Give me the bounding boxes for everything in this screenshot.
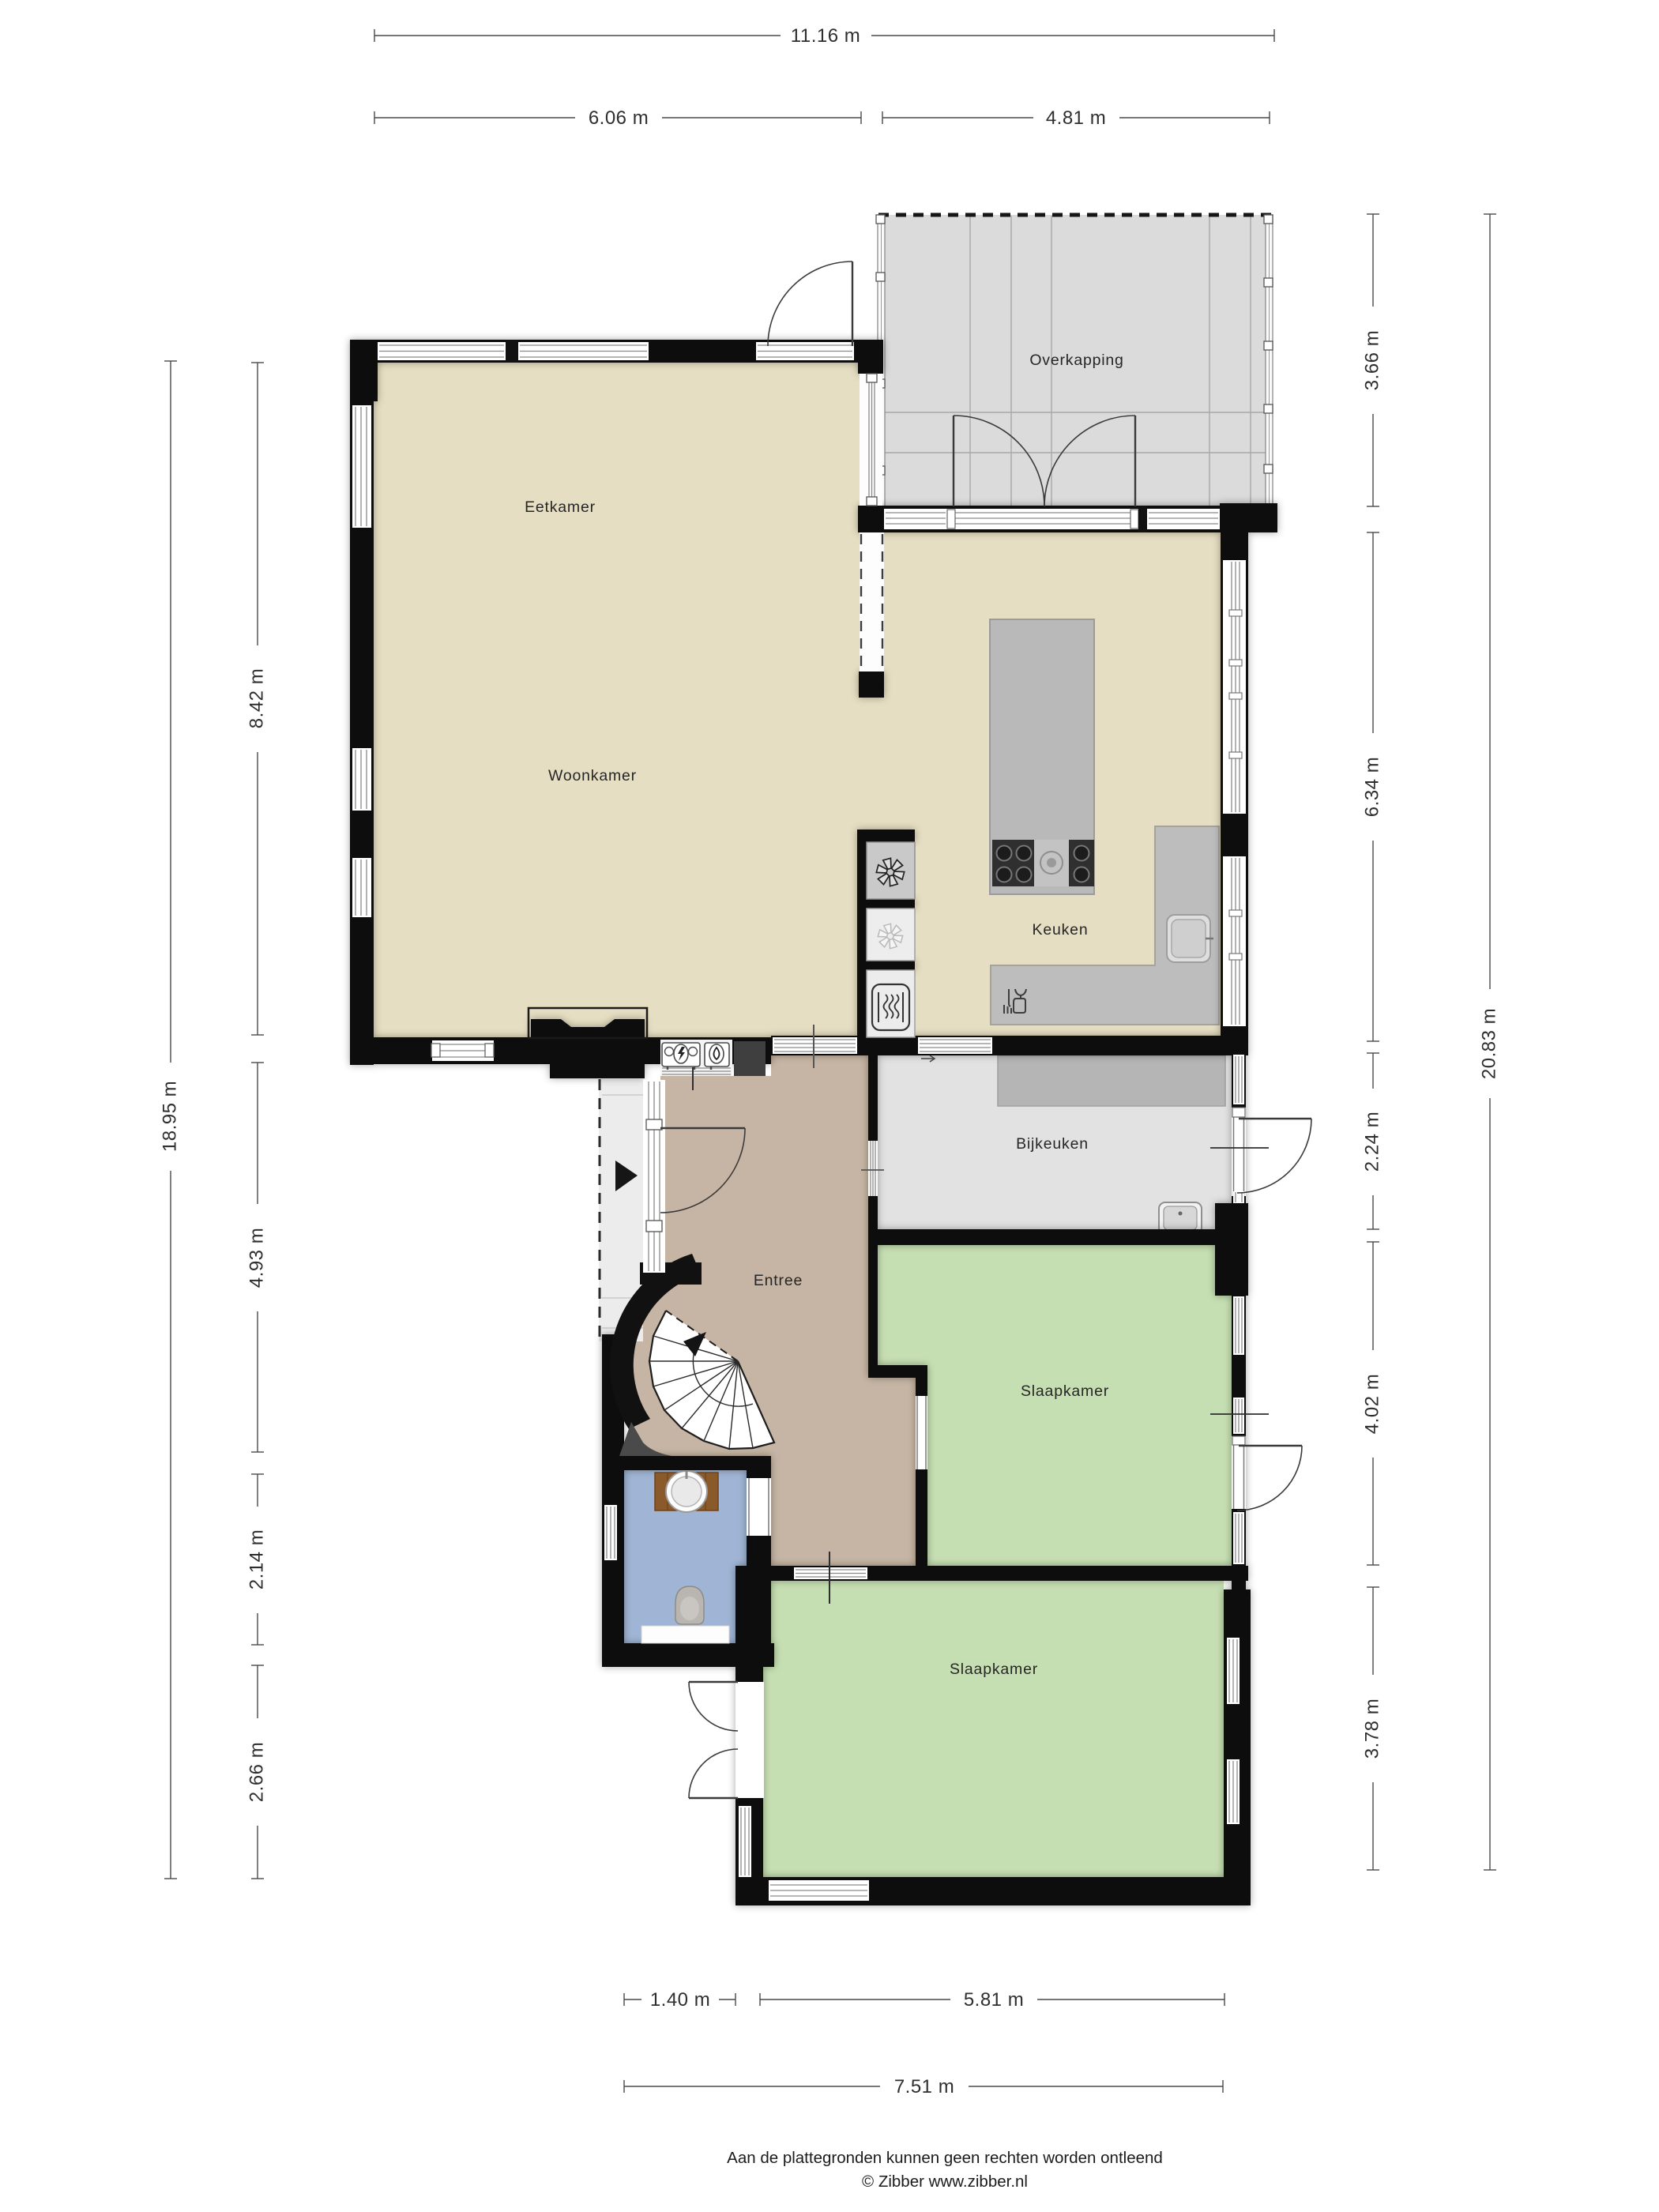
- svg-text:3.66 m: 3.66 m: [1361, 330, 1382, 390]
- svg-text:Entree: Entree: [754, 1272, 803, 1289]
- svg-text:7.51 m: 7.51 m: [894, 2076, 954, 2097]
- svg-text:Eetkamer: Eetkamer: [525, 498, 596, 516]
- svg-text:4.02 m: 4.02 m: [1361, 1374, 1382, 1434]
- svg-text:Slaapkamer: Slaapkamer: [1021, 1382, 1109, 1400]
- svg-text:2.24 m: 2.24 m: [1361, 1112, 1382, 1172]
- svg-text:11.16 m: 11.16 m: [791, 25, 860, 47]
- svg-text:Aan de plattegronden kunnen ge: Aan de plattegronden kunnen geen rechten…: [727, 2149, 1163, 2167]
- svg-text:1.40 m: 1.40 m: [650, 1989, 710, 2011]
- svg-text:3.78 m: 3.78 m: [1361, 1698, 1382, 1759]
- svg-text:8.42 m: 8.42 m: [246, 668, 267, 728]
- svg-text:5.81 m: 5.81 m: [964, 1989, 1024, 2011]
- svg-text:Overkapping: Overkapping: [1029, 352, 1123, 369]
- svg-text:6.06 m: 6.06 m: [589, 107, 649, 129]
- svg-text:4.93 m: 4.93 m: [246, 1228, 267, 1288]
- svg-text:2.66 m: 2.66 m: [246, 1742, 267, 1802]
- svg-text:18.95 m: 18.95 m: [159, 1081, 180, 1152]
- svg-text:Woonkamer: Woonkamer: [548, 767, 637, 784]
- svg-text:Slaapkamer: Slaapkamer: [950, 1661, 1038, 1678]
- svg-text:2.14 m: 2.14 m: [246, 1529, 267, 1589]
- svg-text:20.83 m: 20.83 m: [1478, 1008, 1499, 1079]
- svg-text:Keuken: Keuken: [1033, 921, 1089, 939]
- svg-text:4.81 m: 4.81 m: [1046, 107, 1106, 129]
- svg-text:© Zibber www.zibber.nl: © Zibber www.zibber.nl: [862, 2172, 1028, 2191]
- svg-text:Bijkeuken: Bijkeuken: [1016, 1135, 1089, 1153]
- svg-text:6.34 m: 6.34 m: [1361, 757, 1382, 817]
